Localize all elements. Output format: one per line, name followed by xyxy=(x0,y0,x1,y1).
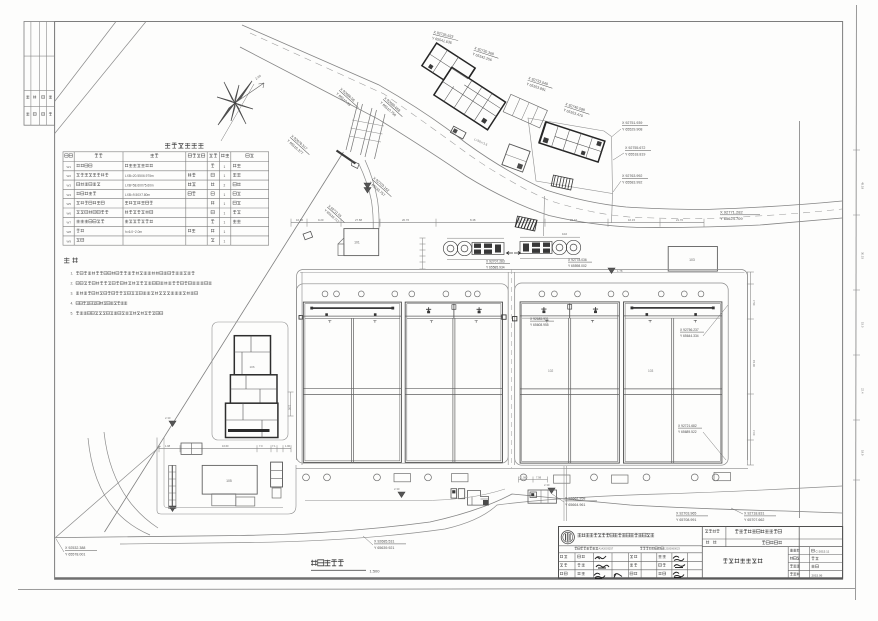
svg-text:7.50: 7.50 xyxy=(752,300,756,306)
svg-text:106: 106 xyxy=(249,365,254,369)
svg-text:C-2015.11: C-2015.11 xyxy=(816,550,830,554)
svg-text:W4: W4 xyxy=(67,193,72,197)
svg-text:101: 101 xyxy=(354,241,360,245)
svg-text:1: 1 xyxy=(224,165,226,169)
svg-text:X 92778.036: X 92778.036 xyxy=(568,258,587,262)
svg-text:X 92685.931: X 92685.931 xyxy=(530,317,549,321)
svg-text:2: 2 xyxy=(224,184,226,188)
svg-text:Y 65583.992: Y 65583.992 xyxy=(622,180,642,184)
svg-text:Y 65598.002: Y 65598.002 xyxy=(568,264,587,268)
svg-text:LXB=58.60X75.60m: LXB=58.60X75.60m xyxy=(125,184,154,188)
svg-text:2015.06: 2015.06 xyxy=(812,573,823,577)
svg-text:3.: 3. xyxy=(71,292,74,296)
svg-text:1:500: 1:500 xyxy=(370,569,381,574)
svg-text:16.60: 16.60 xyxy=(222,444,229,448)
svg-text:Y 65624.709: Y 65624.709 xyxy=(720,216,743,221)
svg-text:1.90: 1.90 xyxy=(285,444,291,448)
svg-text:Y 65689.522: Y 65689.522 xyxy=(678,430,697,434)
svg-text:5.: 5. xyxy=(71,312,74,316)
svg-text:1: 1 xyxy=(224,202,226,206)
svg-text:W9: W9 xyxy=(67,239,72,243)
svg-text:1: 1 xyxy=(224,174,226,178)
svg-text:Y 65529.908: Y 65529.908 xyxy=(622,127,642,131)
svg-text:1: 1 xyxy=(224,221,226,225)
svg-text:103: 103 xyxy=(689,258,695,262)
svg-text:7.0: 7.0 xyxy=(259,444,263,448)
svg-text:Y 65708.991: Y 65708.991 xyxy=(676,518,696,522)
svg-text:W7: W7 xyxy=(67,221,72,225)
svg-text:LXB=9.50X7.80m: LXB=9.50X7.80m xyxy=(125,193,150,197)
svg-text:15.00: 15.00 xyxy=(752,360,756,367)
svg-text:X 92756.237: X 92756.237 xyxy=(680,328,699,332)
svg-text:Y 65608.955: Y 65608.955 xyxy=(530,323,549,327)
svg-text:22.4: 22.4 xyxy=(861,388,865,394)
svg-text:Y 65585.934: Y 65585.934 xyxy=(486,265,505,269)
svg-text:12020060023: 12020060023 xyxy=(664,547,680,551)
svg-text:Y 65644.334: Y 65644.334 xyxy=(680,334,699,338)
svg-text:LXB=20.55X6.975m: LXB=20.55X6.975m xyxy=(125,174,154,178)
svg-text:27.88: 27.88 xyxy=(355,218,362,222)
svg-text:X 92532.388: X 92532.388 xyxy=(65,546,85,550)
svg-text:W5: W5 xyxy=(67,202,72,206)
svg-text:2.30: 2.30 xyxy=(394,487,400,491)
svg-text:1: 1 xyxy=(224,193,226,197)
svg-text:1: 1 xyxy=(224,239,226,243)
svg-text:7.98: 7.98 xyxy=(536,476,542,480)
svg-text:8.48: 8.48 xyxy=(470,218,476,222)
svg-text:1: 1 xyxy=(224,230,226,234)
svg-text:18.9: 18.9 xyxy=(861,450,865,456)
svg-text:9.20: 9.20 xyxy=(318,218,324,222)
svg-text:7.1: 7.1 xyxy=(272,444,276,448)
svg-text:X 92763.992: X 92763.992 xyxy=(622,174,642,178)
svg-text:Y 65639.921: Y 65639.921 xyxy=(374,546,394,550)
svg-text:A142003257: A142003257 xyxy=(599,547,614,551)
svg-text:X 92755.672: X 92755.672 xyxy=(625,146,645,150)
svg-text:103: 103 xyxy=(648,369,654,373)
svg-text:Y 65518.819: Y 65518.819 xyxy=(625,152,645,156)
svg-text:X 92662.958: X 92662.958 xyxy=(565,497,585,501)
svg-text:h=6.0~2.0m: h=6.0~2.0m xyxy=(125,230,142,234)
svg-text:X 92703.965: X 92703.965 xyxy=(676,512,696,516)
svg-text:1.: 1. xyxy=(71,272,74,276)
svg-text:X 92721.682: X 92721.682 xyxy=(678,424,697,428)
svg-text:Y 65664.961: Y 65664.961 xyxy=(565,503,585,507)
svg-text:15.0: 15.0 xyxy=(861,322,865,328)
svg-text:W3: W3 xyxy=(67,184,72,188)
svg-text:105: 105 xyxy=(226,479,232,483)
svg-text:1: 1 xyxy=(224,211,226,215)
svg-text:W1: W1 xyxy=(67,165,72,169)
svg-text:W2: W2 xyxy=(67,174,72,178)
svg-text:4.: 4. xyxy=(71,302,74,306)
svg-text:Y 65578.001: Y 65578.001 xyxy=(65,552,85,556)
svg-text:7.00: 7.00 xyxy=(752,430,756,436)
svg-text:16.15: 16.15 xyxy=(628,218,635,222)
svg-text:X 92707.283: X 92707.283 xyxy=(486,260,505,264)
svg-text:102: 102 xyxy=(562,232,567,236)
svg-text:1.78: 1.78 xyxy=(617,269,623,273)
svg-text:W8: W8 xyxy=(67,230,72,234)
svg-text:45.18: 45.18 xyxy=(861,182,865,189)
svg-text:2.30: 2.30 xyxy=(544,483,550,487)
svg-text:X 92718.831: X 92718.831 xyxy=(744,512,764,516)
svg-text:20.76: 20.76 xyxy=(402,218,409,222)
svg-text:1.98: 1.98 xyxy=(165,444,171,448)
svg-text:2.: 2. xyxy=(71,282,74,286)
svg-text:1.98: 1.98 xyxy=(521,476,527,480)
svg-text:X 92685.531: X 92685.531 xyxy=(374,540,394,544)
svg-text:21.70: 21.70 xyxy=(676,218,683,222)
svg-text:X 92771.282: X 92771.282 xyxy=(720,210,743,215)
svg-text:102: 102 xyxy=(548,369,554,373)
svg-text:X 92751.939: X 92751.939 xyxy=(622,121,642,125)
svg-text:30.15: 30.15 xyxy=(861,252,865,259)
svg-text:Y 65707.662: Y 65707.662 xyxy=(744,518,764,522)
svg-text:23.16: 23.16 xyxy=(570,218,577,222)
svg-text:2.30: 2.30 xyxy=(165,416,171,420)
svg-text:16.96: 16.96 xyxy=(296,218,303,222)
svg-text:W6: W6 xyxy=(67,211,72,215)
